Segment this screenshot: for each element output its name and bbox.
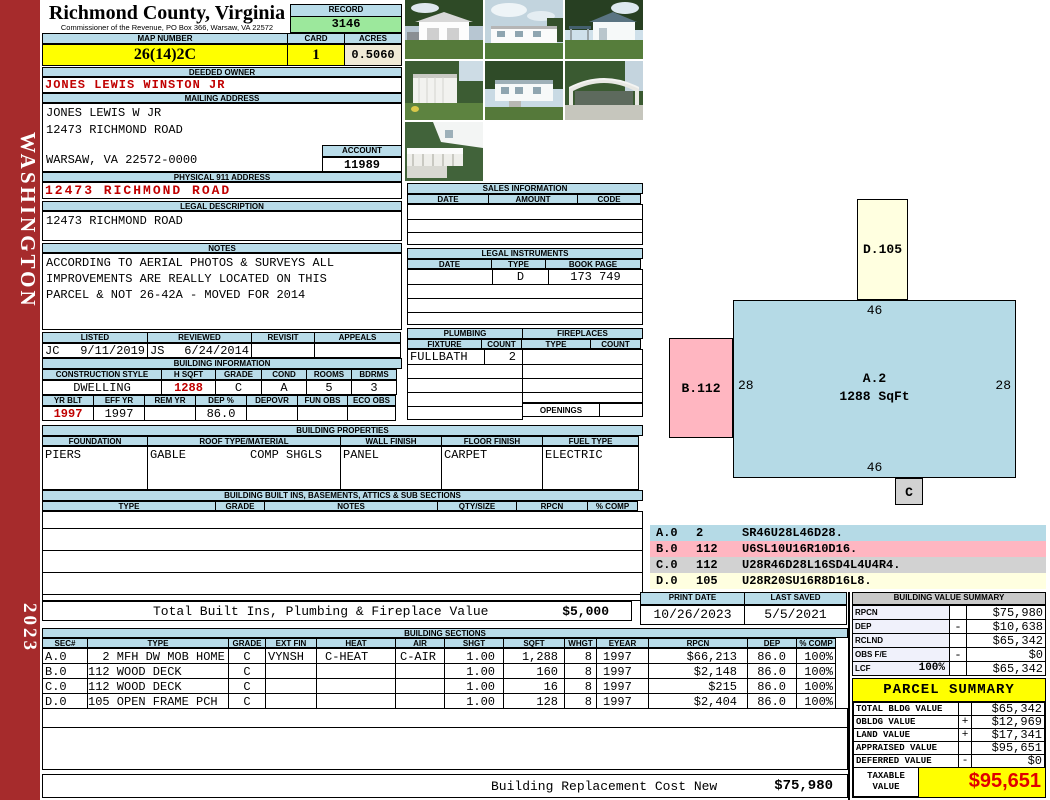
account-header: ACCOUNT <box>322 145 402 157</box>
ps-sign <box>958 741 972 755</box>
last-saved-value: 5/5/2021 <box>744 605 847 625</box>
bs-dep: 86.0 <box>747 663 797 679</box>
ps-label: DEFERRED VALUE <box>853 754 959 768</box>
bvs-value: $75,980 <box>966 605 1046 620</box>
photo-mobile-home-steps[interactable] <box>485 61 563 120</box>
building-section-row: A.0 2 MFH DW MOB HOME C VYNSH C-HEAT C-A… <box>42 648 848 664</box>
legend-trace: U28R46D28L16SD4L4U4R4. <box>742 557 900 573</box>
bs-whgt: 8 <box>564 693 597 709</box>
reviewed-value: JS6/24/2014 <box>147 343 252 358</box>
sketch-section-b: B.112 <box>669 338 733 438</box>
sales-code-header: CODE <box>577 194 641 204</box>
replacement-cost-value: $75,980 <box>743 778 833 794</box>
bs-air-header: AIR <box>395 638 445 648</box>
plumbing-rows: FULLBATH 2 <box>407 349 523 420</box>
listed-header: LISTED <box>42 332 148 343</box>
sales-information-header: SALES INFORMATION <box>407 183 643 194</box>
instrument-date-header: DATE <box>407 259 492 269</box>
legend-sec: A.0 <box>650 525 696 541</box>
building-value-summary: RPCN $75,980 DEP - $10,638 RCLND $65,342… <box>852 605 1046 676</box>
deeded-owner-header: DEEDED OWNER <box>42 67 402 77</box>
instrument-book-header: BOOK PAGE <box>545 259 641 269</box>
sales-amount-header: AMOUNT <box>488 194 578 204</box>
built-ins-empty-rows <box>42 511 643 601</box>
divider-line <box>523 364 642 365</box>
ps-sign: - <box>958 754 972 768</box>
bs-sec-header: SEC# <box>42 638 88 648</box>
bs-comp: 100% <box>796 678 836 694</box>
district-label: WASHINGTON <box>0 95 40 345</box>
funobs-value <box>297 406 348 421</box>
bvs-label: RPCN <box>852 605 950 620</box>
notes-line-3: PARCEL & NOT 26-42A - MOVED FOR 2014 <box>46 288 305 302</box>
floor-finish-header: FLOOR FINISH <box>441 436 543 446</box>
fixture-count-header: COUNT <box>481 339 522 349</box>
bs-heat <box>316 693 396 709</box>
county-title: Richmond County, Virginia <box>46 2 288 23</box>
built-ins-comp-header: % COMP <box>587 501 638 511</box>
bs-sqft-header: SQFT <box>503 638 565 648</box>
bs-rpcn: $2,148 <box>648 663 748 679</box>
bdrms-header: BDRMS <box>351 369 397 380</box>
depovr-value <box>246 406 298 421</box>
bs-eyear: 1997 <box>596 648 649 664</box>
effyr-value: 1997 <box>93 406 145 421</box>
construction-style-value: DWELLING <box>42 380 162 395</box>
sketch-section-c-label: C <box>896 485 922 500</box>
instrument-type-header: TYPE <box>491 259 546 269</box>
bs-shgt: 1.00 <box>444 648 504 664</box>
bvs-sign <box>949 633 967 648</box>
funobs-header: FUN OBS <box>297 395 348 406</box>
bvs-value: $10,638 <box>966 619 1046 634</box>
listed-value: JC9/11/2019 <box>42 343 148 358</box>
print-date-header: PRINT DATE <box>640 592 745 605</box>
photo-house-with-carport[interactable] <box>565 0 643 59</box>
bs-type: 112 WOOD DECK <box>87 663 229 679</box>
instrument-date-value <box>408 270 493 284</box>
bs-air <box>395 678 445 694</box>
bs-dep-header: DEP <box>747 638 797 648</box>
legend-code: 112 <box>696 541 742 557</box>
building-properties-header: BUILDING PROPERTIES <box>42 425 643 436</box>
bvs-lcf-pct: 100% <box>919 662 945 675</box>
bs-heat <box>316 663 396 679</box>
dep-value: 86.0 <box>195 406 247 421</box>
replacement-cost-row: Building Replacement Cost New $75,980 <box>42 774 848 798</box>
ps-value: $95,651 <box>971 741 1045 755</box>
bs-comp: 100% <box>796 663 836 679</box>
bs-dep: 86.0 <box>747 648 797 664</box>
bs-sqft: 160 <box>503 663 565 679</box>
ps-value: $12,969 <box>971 715 1045 729</box>
bdrms-value: 3 <box>351 380 397 395</box>
fixture-header: FIXTURE <box>407 339 482 349</box>
listed-date: 9/11/2019 <box>80 344 145 357</box>
legend-trace: U28R20SU16R8D16L8. <box>742 573 872 589</box>
ps-sign: + <box>958 728 972 742</box>
built-ins-header: BUILDING BUILT INS, BASEMENTS, ATTICS & … <box>42 490 643 501</box>
mailing-line-2: 12473 RICHMOND ROAD <box>46 123 183 137</box>
building-section-row: D.0 105 OPEN FRAME PCH C 1.00 128 8 1997… <box>42 693 848 709</box>
divider-line <box>43 550 642 551</box>
physical-address-header: PHYSICAL 911 ADDRESS <box>42 172 402 182</box>
divider-line <box>408 364 522 365</box>
rooms-value: 5 <box>306 380 352 395</box>
divider-line <box>408 298 642 299</box>
fireplace-type-header: TYPE <box>521 339 591 349</box>
divider-line <box>408 378 522 379</box>
bvs-sign <box>949 605 967 620</box>
built-ins-total-label: Total Built Ins, Plumbing & Fireplace Va… <box>153 604 488 620</box>
sketch-dim-bottom: 46 <box>734 460 1015 475</box>
legal-instruments-rows: D 173 749 <box>407 269 643 325</box>
taxable-value-amount: $95,651 <box>919 767 1045 797</box>
ps-label: APPRAISED VALUE <box>853 741 959 755</box>
legend-code: 105 <box>696 573 742 589</box>
divider-line <box>408 219 642 220</box>
bvs-label: OBS F/E <box>852 647 950 662</box>
building-value-summary-header: BUILDING VALUE SUMMARY <box>852 592 1046 605</box>
sketch-section-a-label: A.2 <box>734 371 1015 386</box>
sketch-dim-top: 46 <box>734 303 1015 318</box>
mailing-line-3: WARSAW, VA 22572-0000 <box>46 153 197 167</box>
mailing-address-header: MAILING ADDRESS <box>42 93 402 103</box>
construction-style-header: CONSTRUCTION STYLE <box>42 369 162 380</box>
built-ins-rpcn-header: RPCN <box>516 501 588 511</box>
bvs-label-lcf: LCF 100% <box>852 661 950 676</box>
commissioner-subtitle: Commissioner of the Revenue, PO Box 366,… <box>42 23 292 33</box>
fuel-type-value: ELECTRIC <box>542 446 639 490</box>
bs-sec: B.0 <box>42 663 88 679</box>
map-number-value: 26(14)2C <box>42 44 288 66</box>
sketch-section-d: D.105 <box>857 199 908 300</box>
replacement-cost-label: Building Replacement Cost New <box>491 779 717 795</box>
built-ins-type-header: TYPE <box>42 501 216 511</box>
yrblt-header: YR BLT <box>42 395 94 406</box>
legend-trace: SR46U28L46D28. <box>742 525 843 541</box>
ps-label: LAND VALUE <box>853 728 959 742</box>
account-value: 11989 <box>322 157 402 172</box>
bs-dep: 86.0 <box>747 678 797 694</box>
dep-header: DEP % <box>195 395 247 406</box>
bs-shgt: 1.00 <box>444 693 504 709</box>
bs-type: 2 MFH DW MOB HOME <box>87 648 229 664</box>
bs-extfin <box>265 693 317 709</box>
ps-sign <box>958 702 972 716</box>
legal-description-box: 12473 RICHMOND ROAD <box>42 211 402 241</box>
depovr-header: DEPOVR <box>246 395 298 406</box>
taxable-value-row: TAXABLE VALUE $95,651 <box>853 767 1045 797</box>
sketch-section-a-sqft: 1288 SqFt <box>734 389 1015 404</box>
last-saved-header: LAST SAVED <box>744 592 847 605</box>
bvs-label: DEP <box>852 619 950 634</box>
ps-value: $65,342 <box>971 702 1045 716</box>
fixture-count-value: 2 <box>485 350 522 364</box>
bvs-value: $0 <box>966 647 1046 662</box>
card-value: 1 <box>287 44 345 66</box>
bvs-value: $65,342 <box>966 633 1046 648</box>
bs-comp-header: % COMP <box>796 638 836 648</box>
instrument-type-value: D <box>493 270 549 284</box>
hsqft-value: 1288 <box>161 380 216 395</box>
reviewed-date: 6/24/2014 <box>184 344 249 357</box>
bs-comp: 100% <box>796 648 836 664</box>
building-section-row: B.0 112 WOOD DECK C 1.00 160 8 1997 $2,1… <box>42 663 848 679</box>
reviewed-header: REVIEWED <box>147 332 252 343</box>
bvs-sign <box>949 661 967 676</box>
taxable-value-label: TAXABLE VALUE <box>853 767 919 797</box>
divider-line <box>43 594 642 595</box>
built-ins-qty-header: QTY/SIZE <box>437 501 517 511</box>
openings-value <box>599 403 643 417</box>
bs-whgt-header: WHGT <box>564 638 597 648</box>
card-header: CARD <box>287 33 345 44</box>
ps-value: $0 <box>971 754 1045 768</box>
divider-line <box>848 592 850 800</box>
divider-line <box>408 312 642 313</box>
wall-finish-value: PANEL <box>340 446 442 490</box>
bs-shgt: 1.00 <box>444 663 504 679</box>
plumbing-header: PLUMBING <box>407 328 523 339</box>
ps-sign: + <box>958 715 972 729</box>
appeals-value <box>314 343 401 358</box>
bs-grade-header: GRADE <box>228 638 266 648</box>
fuel-type-header: FUEL TYPE <box>542 436 639 446</box>
grade-header: GRADE <box>215 369 262 380</box>
bs-sqft: 128 <box>503 693 565 709</box>
map-number-header: MAP NUMBER <box>42 33 288 44</box>
building-sections-empty-rows <box>42 708 848 770</box>
divider-line <box>408 406 522 407</box>
built-ins-total-row: Total Built Ins, Plumbing & Fireplace Va… <box>42 601 632 621</box>
fireplace-count-header: COUNT <box>590 339 641 349</box>
remyr-header: REM YR <box>144 395 196 406</box>
reviewed-by: JS <box>150 344 164 357</box>
yrblt-value: 1997 <box>42 406 94 421</box>
legal-instruments-header: LEGAL INSTRUMENTS <box>407 248 643 259</box>
bs-comp: 100% <box>796 693 836 709</box>
sketch-legend: A.0 2 SR46U28L46D28. B.0 112 U6SL10U16R1… <box>650 525 1046 589</box>
ps-label: OBLDG VALUE <box>853 715 959 729</box>
bs-grade: C <box>228 648 266 664</box>
bs-eyear: 1997 <box>596 693 649 709</box>
legend-row-b: B.0 112 U6SL10U16R10D16. <box>650 541 1046 557</box>
rooms-header: ROOMS <box>306 369 352 380</box>
bvs-sign: - <box>949 647 967 662</box>
bs-heat <box>316 678 396 694</box>
instrument-book-value: 173 749 <box>549 270 642 284</box>
revisit-header: REVISIT <box>251 332 315 343</box>
wall-finish-header: WALL FINISH <box>340 436 442 446</box>
notes-box: ACCORDING TO AERIAL PHOTOS & SURVEYS ALL… <box>42 253 402 330</box>
bs-sqft: 1,288 <box>503 648 565 664</box>
foundation-value: PIERS <box>42 446 148 490</box>
legend-row-d: D.0 105 U28R20SU16R8D16L8. <box>650 573 1046 589</box>
building-sketch: D.105 46 46 28 28 A.2 1288 SqFt B.112 C <box>650 185 1048 522</box>
bs-sec: C.0 <box>42 678 88 694</box>
bs-grade: C <box>228 663 266 679</box>
legend-sec: C.0 <box>650 557 696 573</box>
bvs-value: $65,342 <box>966 661 1046 676</box>
legend-sec: B.0 <box>650 541 696 557</box>
effyr-header: EFF YR <box>93 395 145 406</box>
legend-code: 112 <box>696 557 742 573</box>
roof-header: ROOF TYPE/MATERIAL <box>147 436 341 446</box>
bs-extfin-header: EXT FIN <box>265 638 317 648</box>
parcel-summary-header: PARCEL SUMMARY <box>853 679 1045 702</box>
bs-rpcn: $215 <box>648 678 748 694</box>
roof-value: GABLE COMP SHGLS <box>147 446 341 490</box>
bs-rpcn: $2,404 <box>648 693 748 709</box>
legend-row-c: C.0 112 U28R46D28L16SD4L4U4R4. <box>650 557 1046 573</box>
tax-year-label: 2023 <box>0 588 40 668</box>
divider-line <box>523 378 642 379</box>
sketch-section-c: C <box>895 478 923 505</box>
sketch-section-a: 46 46 28 28 A.2 1288 SqFt <box>733 300 1016 478</box>
bs-heat: C-HEAT <box>316 648 396 664</box>
building-sections-header: BUILDING SECTIONS <box>42 628 848 638</box>
bs-whgt: 8 <box>564 663 597 679</box>
legend-trace: U6SL10U16R10D16. <box>742 541 857 557</box>
sidebar: WASHINGTON 2023 <box>0 0 40 800</box>
divider-line <box>43 572 642 573</box>
bs-rpcn: $66,213 <box>648 648 748 664</box>
legend-sec: D.0 <box>650 573 696 589</box>
record-value: 3146 <box>290 16 402 33</box>
property-record-card: WASHINGTON 2023 Richmond County, Virgini… <box>0 0 1050 800</box>
fireplaces-rows <box>522 349 643 403</box>
divider-line <box>523 392 642 393</box>
legend-row-a: A.0 2 SR46U28L46D28. <box>650 525 1046 541</box>
acres-header: ACRES <box>344 33 402 44</box>
bs-type: 112 WOOD DECK <box>87 678 229 694</box>
built-ins-total-value: $5,000 <box>529 604 609 620</box>
mailing-line-1: JONES LEWIS W JR <box>46 106 161 120</box>
ps-label: TOTAL BLDG VALUE <box>853 702 959 716</box>
bs-shgt: 1.00 <box>444 678 504 694</box>
floor-finish-value: CARPET <box>441 446 543 490</box>
bs-whgt: 8 <box>564 678 597 694</box>
bvs-sign: - <box>949 619 967 634</box>
building-information-header: BUILDING INFORMATION <box>42 358 402 369</box>
bs-eyear: 1997 <box>596 678 649 694</box>
cond-value: A <box>261 380 307 395</box>
bs-heat-header: HEAT <box>316 638 396 648</box>
photo-storage-shed[interactable] <box>405 61 483 120</box>
cond-header: COND <box>261 369 307 380</box>
hsqft-header: H SQFT <box>161 369 216 380</box>
bs-type: 105 OPEN FRAME PCH <box>87 693 229 709</box>
remyr-value <box>144 406 196 421</box>
photo-grid <box>405 0 645 182</box>
revisit-value <box>251 343 315 358</box>
bs-grade: C <box>228 693 266 709</box>
openings-label: OPENINGS <box>522 403 600 417</box>
bs-type-header: TYPE <box>87 638 229 648</box>
divider-line <box>408 284 642 285</box>
built-ins-notes-header: NOTES <box>264 501 438 511</box>
photo-detached-garage[interactable] <box>405 0 483 59</box>
bvs-lcf-label: LCF <box>855 662 871 675</box>
sales-date-header: DATE <box>407 194 489 204</box>
parcel-summary: PARCEL SUMMARY TOTAL BLDG VALUE $65,342 … <box>852 678 1046 798</box>
bs-whgt: 8 <box>564 648 597 664</box>
foundation-header: FOUNDATION <box>42 436 148 446</box>
bs-air <box>395 693 445 709</box>
divider-line <box>408 392 522 393</box>
bs-sqft: 16 <box>503 678 565 694</box>
bs-sec: A.0 <box>42 648 88 664</box>
bs-rpcn-header: RPCN <box>648 638 748 648</box>
bs-extfin: VYNSH <box>265 648 317 664</box>
bs-extfin <box>265 678 317 694</box>
ecoobs-value <box>347 406 396 421</box>
notes-header: NOTES <box>42 243 402 253</box>
roof-material-value: COMP SHGLS <box>250 448 322 462</box>
listed-by: JC <box>45 344 59 357</box>
grade-value: C <box>215 380 262 395</box>
bs-air <box>395 663 445 679</box>
physical-address-value: 12473 RICHMOND ROAD <box>42 182 402 199</box>
bs-eyear: 1997 <box>596 663 649 679</box>
legend-code: 2 <box>696 525 742 541</box>
legal-description-value: 12473 RICHMOND ROAD <box>46 214 183 228</box>
bs-extfin <box>265 663 317 679</box>
acres-value: 0.5060 <box>344 44 402 66</box>
fixture-value: FULLBATH <box>408 350 485 364</box>
bs-air: C-AIR <box>395 648 445 664</box>
divider-line <box>408 232 642 233</box>
print-date-value: 10/26/2023 <box>640 605 745 625</box>
ecoobs-header: ECO OBS <box>347 395 396 406</box>
legal-description-header: LEGAL DESCRIPTION <box>42 201 402 211</box>
sketch-section-d-label: D.105 <box>858 242 907 257</box>
divider-line <box>43 727 847 728</box>
notes-line-2: IMPROVEMENTS ARE REALLY LOCATED ON THIS <box>46 272 327 286</box>
bs-dep: 86.0 <box>747 693 797 709</box>
sales-empty-rows <box>407 204 643 245</box>
bs-sec: D.0 <box>42 693 88 709</box>
divider-line <box>43 528 642 529</box>
photo-porch-deck[interactable] <box>405 122 483 181</box>
photo-mobile-home-front[interactable] <box>485 0 563 59</box>
bs-eyear-header: EYEAR <box>596 638 649 648</box>
bvs-label: RCLND <box>852 633 950 648</box>
deeded-owner-value: JONES LEWIS WINSTON JR <box>42 77 402 93</box>
building-section-row: C.0 112 WOOD DECK C 1.00 16 8 1997 $215 … <box>42 678 848 694</box>
bs-shgt-header: SHGT <box>444 638 504 648</box>
notes-line-1: ACCORDING TO AERIAL PHOTOS & SURVEYS ALL <box>46 256 334 270</box>
appeals-header: APPEALS <box>314 332 401 343</box>
ps-value: $17,341 <box>971 728 1045 742</box>
sketch-section-b-label: B.112 <box>670 381 732 396</box>
fireplaces-header: FIREPLACES <box>522 328 643 339</box>
bs-grade: C <box>228 678 266 694</box>
photo-metal-carport[interactable] <box>565 61 643 120</box>
built-ins-grade-header: GRADE <box>215 501 265 511</box>
roof-type-value: GABLE <box>150 448 186 462</box>
